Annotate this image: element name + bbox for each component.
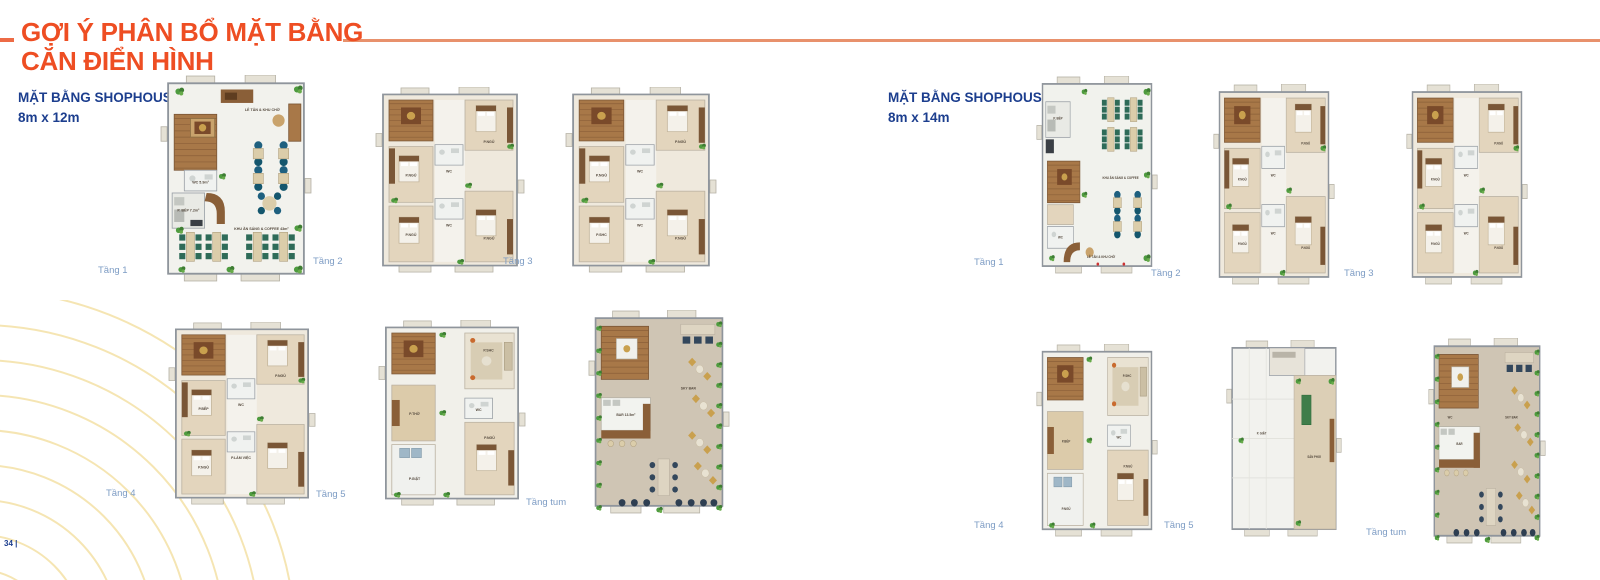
floor-plan-image: P.NGỦWCP.NGỦWCP.NGỦP.NGỦ bbox=[1213, 84, 1335, 285]
floor-plan-image: P.NGỦWCP.NGỦWCP.NGỦP.NGỦ bbox=[375, 87, 525, 273]
title-dash bbox=[0, 38, 14, 42]
plan-8mx12m-tầng-5: P.SHCP.THỜWCP.NGỦP.GIẶTTầng 5 bbox=[378, 320, 526, 506]
svg-text:P.BẾP: P.BẾP bbox=[1062, 438, 1071, 443]
svg-text:P.NGỦ: P.NGỦ bbox=[1238, 240, 1247, 245]
svg-text:P.NGỦ: P.NGỦ bbox=[1123, 463, 1132, 468]
floor-plan-image: KHU ĂN SÁNG & COFFEEP. BẾPWCLỄ TÂN & KHU… bbox=[1036, 76, 1158, 274]
floor-plan-image: BARSKY BARWC bbox=[1428, 338, 1546, 544]
svg-text:WC: WC bbox=[1058, 235, 1063, 239]
page-number: 34 | bbox=[4, 539, 17, 548]
svg-text:P.NGỦ: P.NGỦ bbox=[1494, 244, 1503, 249]
svg-text:BAR 13.5m²: BAR 13.5m² bbox=[616, 413, 636, 417]
svg-text:P.NGỦ: P.NGỦ bbox=[1301, 244, 1310, 249]
floor-label: Tầng 5 bbox=[316, 489, 374, 500]
svg-text:P. BẾP: P. BẾP bbox=[1053, 115, 1063, 120]
svg-text:P. BẾP 7.2m²: P. BẾP 7.2m² bbox=[177, 208, 200, 213]
floor-plan-image: P.SHCP.BẾPWCP.NGỦP.NGỦ bbox=[1036, 344, 1158, 537]
svg-text:P.NGỦ: P.NGỦ bbox=[675, 236, 687, 241]
floor-label: Tầng 3 bbox=[1344, 268, 1402, 279]
plan-8mx14m-tầng-1: KHU ĂN SÁNG & COFFEEP. BẾPWCLỄ TÂN & KHU… bbox=[1036, 76, 1158, 274]
svg-text:P.SHC: P.SHC bbox=[1123, 374, 1132, 378]
svg-text:P.SHC: P.SHC bbox=[483, 349, 494, 353]
plan-8mx12m-tầng-3: P.NGỦWCP.NGỦWCP.SHCP.NGỦTầng 3 bbox=[565, 87, 717, 273]
svg-text:P.NGỦ: P.NGỦ bbox=[1238, 176, 1247, 181]
svg-text:LỄ TÂN & KHU CHỜ: LỄ TÂN & KHU CHỜ bbox=[245, 107, 281, 112]
brochure-page: GỢI Ý PHÂN BỔ MẶT BẰNGCĂN ĐIỂN HÌNH MẶT … bbox=[0, 0, 1600, 580]
svg-text:P.THỜ: P.THỜ bbox=[409, 411, 420, 416]
page-title-line2: CĂN ĐIỂN HÌNH bbox=[21, 46, 214, 76]
section-heading-8x12: MẶT BẰNG SHOPHOUSE 8m x 12m bbox=[18, 88, 181, 129]
section-heading-label: MẶT BẰNG SHOPHOUSE bbox=[18, 88, 181, 108]
svg-text:P.NGỦ: P.NGỦ bbox=[275, 373, 286, 378]
plan-8mx14m-tầng-3: P.NGỦWCP.NGỦWCP.NGỦP.NGỦTầng 3 bbox=[1406, 84, 1528, 285]
svg-text:WC: WC bbox=[238, 403, 244, 407]
floor-plan-image: LỄ TÂN & KHU CHỜWC 5.9m²P. BẾP 7.2m²KHU … bbox=[160, 75, 312, 282]
header-rule bbox=[343, 39, 1600, 42]
svg-text:WC: WC bbox=[446, 170, 452, 174]
section-heading-8x14: MẶT BẰNG SHOPHOUSE 8m x 14m bbox=[888, 88, 1051, 129]
svg-text:SKY BAR: SKY BAR bbox=[1505, 415, 1518, 419]
section-heading-label: MẶT BẰNG SHOPHOUSE bbox=[888, 88, 1051, 108]
svg-text:WC: WC bbox=[476, 408, 482, 412]
svg-text:P.NGỦ: P.NGỦ bbox=[1431, 176, 1440, 181]
floor-label: Tầng 1 bbox=[974, 257, 1032, 268]
floor-plan-image: BAR 13.5m²SKY BAR bbox=[588, 310, 730, 514]
plan-8mx14m-tầng-tum: BARSKY BARWCTầng tum bbox=[1428, 338, 1546, 544]
svg-text:BAR: BAR bbox=[1456, 442, 1463, 446]
svg-text:P.BẾP: P.BẾP bbox=[198, 406, 209, 411]
page-title-line1: GỢI Ý PHÂN BỔ MẶT BẰNG bbox=[21, 17, 363, 47]
svg-text:P.NGỦ: P.NGỦ bbox=[675, 139, 687, 144]
section-dimensions: 8m x 12m bbox=[18, 108, 181, 128]
svg-text:KHU ĂN SÁNG & COFFEE: KHU ĂN SÁNG & COFFEE bbox=[1103, 175, 1140, 180]
svg-text:SÂN PHƠI: SÂN PHƠI bbox=[1307, 454, 1321, 460]
svg-text:P.SHC: P.SHC bbox=[596, 233, 607, 237]
page-title: GỢI Ý PHÂN BỔ MẶT BẰNGCĂN ĐIỂN HÌNH bbox=[21, 18, 363, 75]
floor-label: Tầng 4 bbox=[974, 520, 1032, 531]
svg-text:WC: WC bbox=[637, 170, 644, 174]
section-dimensions: 8m x 14m bbox=[888, 108, 1051, 128]
floor-label: Tầng tum bbox=[1366, 527, 1424, 538]
floor-plan-image: P.SHCP.THỜWCP.NGỦP.GIẶT bbox=[378, 320, 526, 506]
floor-label: Tầng 5 bbox=[1164, 520, 1222, 531]
svg-text:P.NGỦ: P.NGỦ bbox=[406, 232, 417, 237]
svg-text:LỄ TÂN & KHU CHỜ: LỄ TÂN & KHU CHỜ bbox=[1087, 254, 1115, 259]
floor-label: Tầng 2 bbox=[1151, 268, 1209, 279]
svg-text:P.NGỦ: P.NGỦ bbox=[1494, 140, 1503, 145]
svg-text:P.NGỦ: P.NGỦ bbox=[1431, 240, 1440, 245]
svg-text:P.LÀM VIỆC: P.LÀM VIỆC bbox=[231, 455, 251, 460]
floor-plan-image: P.NGỦWCP.NGỦWCP.NGỦP.NGỦ bbox=[1406, 84, 1528, 285]
svg-text:P.GIẶT: P.GIẶT bbox=[409, 476, 421, 481]
svg-text:P.NGỦ: P.NGỦ bbox=[1301, 140, 1310, 145]
floor-label: Tầng 1 bbox=[98, 265, 156, 276]
svg-text:WC: WC bbox=[637, 224, 644, 228]
svg-text:WC: WC bbox=[1117, 435, 1122, 439]
svg-text:WC: WC bbox=[1271, 173, 1276, 177]
floor-label: Tầng 4 bbox=[106, 488, 164, 499]
svg-text:WC 5.9m²: WC 5.9m² bbox=[192, 181, 209, 185]
svg-text:P.NGỦ: P.NGỦ bbox=[484, 435, 495, 440]
svg-text:WC: WC bbox=[1464, 173, 1469, 177]
floor-plan-image: P.NGỦWCP.NGỦWCP.SHCP.NGỦ bbox=[565, 87, 717, 273]
svg-text:WC: WC bbox=[446, 224, 452, 228]
svg-text:WC: WC bbox=[1271, 231, 1276, 235]
plan-8mx14m-tầng-2: P.NGỦWCP.NGỦWCP.NGỦP.NGỦTầng 2 bbox=[1213, 84, 1335, 285]
svg-text:P.NGỦ: P.NGỦ bbox=[484, 236, 495, 241]
svg-text:SKY BAR: SKY BAR bbox=[681, 386, 697, 390]
floor-plan-image: P.NGỦWCP.BẾPP.LÀM VIỆCP.NGỦ bbox=[168, 322, 316, 505]
svg-text:WC: WC bbox=[1448, 415, 1453, 419]
floor-plan-image: P. GIẶTSÂN PHƠI bbox=[1226, 340, 1342, 537]
svg-text:P.NGỦ: P.NGỦ bbox=[596, 172, 608, 177]
svg-text:P.NGỦ: P.NGỦ bbox=[484, 139, 495, 144]
plan-8mx12m-tầng-4: P.NGỦWCP.BẾPP.LÀM VIỆCP.NGỦTầng 4 bbox=[168, 322, 316, 505]
plan-8mx12m-tầng-2: P.NGỦWCP.NGỦWCP.NGỦP.NGỦTầng 2 bbox=[375, 87, 525, 273]
floor-label: Tầng tum bbox=[526, 497, 584, 508]
plan-8mx12m-tầng-1: LỄ TÂN & KHU CHỜWC 5.9m²P. BẾP 7.2m²KHU … bbox=[160, 75, 312, 282]
plan-8mx14m-tầng-4: P.SHCP.BẾPWCP.NGỦP.NGỦTầng 4 bbox=[1036, 344, 1158, 537]
svg-text:WC: WC bbox=[1464, 231, 1469, 235]
floor-label: Tầng 2 bbox=[313, 256, 371, 267]
floor-label: Tầng 3 bbox=[503, 256, 561, 267]
svg-text:P. GIẶT: P. GIẶT bbox=[1257, 430, 1267, 436]
svg-text:P.NGỦ: P.NGỦ bbox=[406, 172, 417, 177]
plan-8mx12m-tầng-tum: BAR 13.5m²SKY BARTầng tum bbox=[588, 310, 730, 514]
plan-8mx14m-tầng-5: P. GIẶTSÂN PHƠITầng 5 bbox=[1226, 340, 1342, 537]
svg-text:KHU ĂN SÁNG & COFFEE 43m²: KHU ĂN SÁNG & COFFEE 43m² bbox=[234, 226, 289, 231]
svg-text:P.NGỦ: P.NGỦ bbox=[198, 465, 209, 470]
svg-text:P.NGỦ: P.NGỦ bbox=[1062, 506, 1071, 511]
